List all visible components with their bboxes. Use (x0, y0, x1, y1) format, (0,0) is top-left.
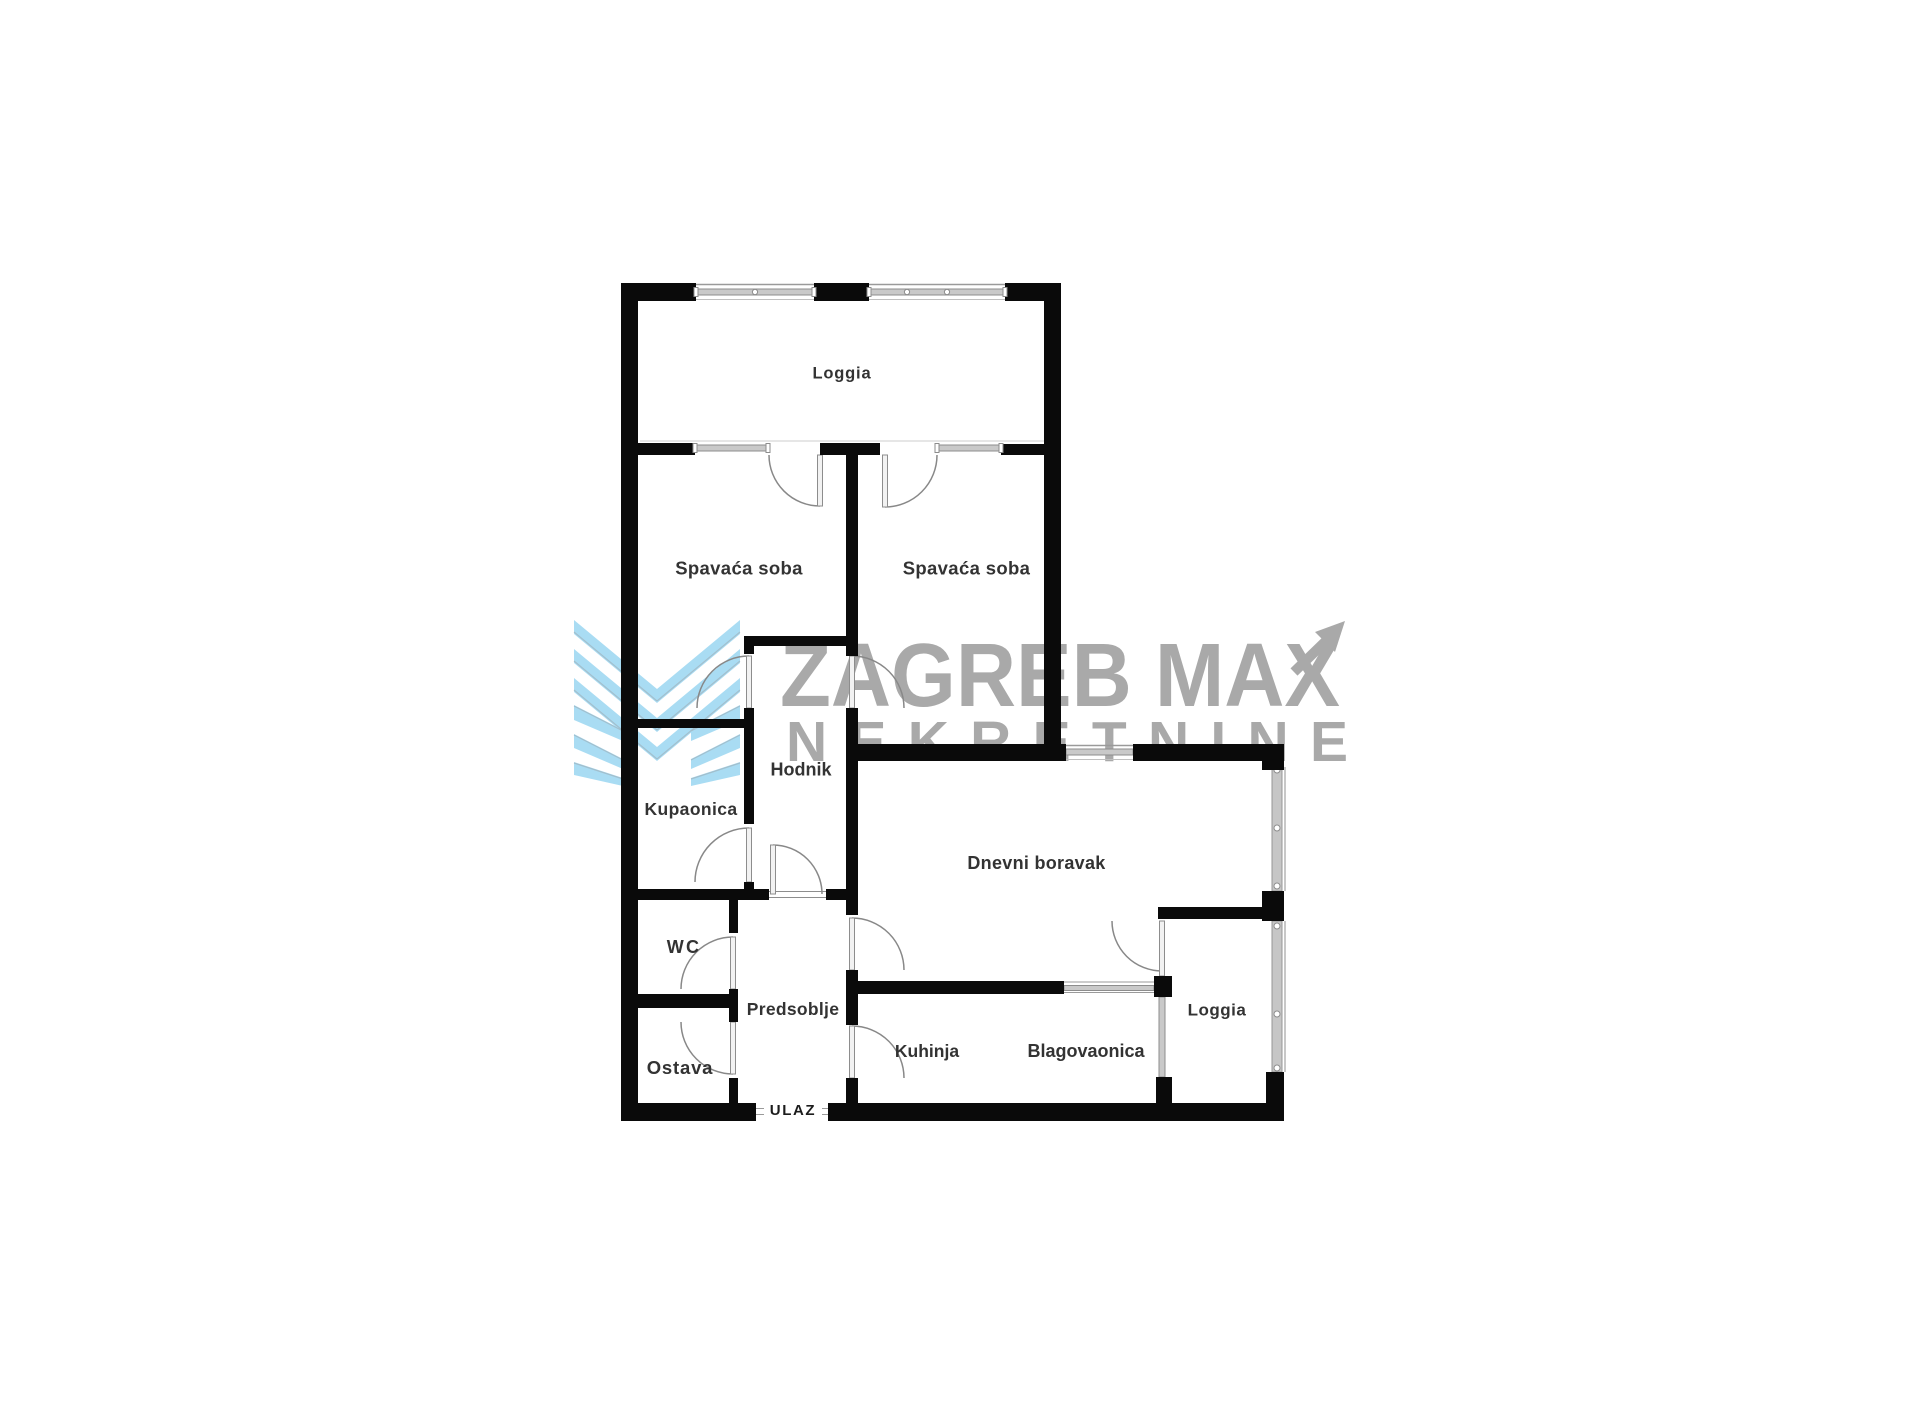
svg-text:WC: WC (667, 937, 701, 957)
svg-text:Spavaća soba: Spavaća soba (903, 558, 1031, 579)
svg-text:Kuhinja: Kuhinja (895, 1041, 959, 1061)
svg-text:Loggia: Loggia (813, 365, 872, 383)
svg-text:Dnevni boravak: Dnevni boravak (967, 853, 1106, 873)
svg-text:Hodnik: Hodnik (771, 760, 833, 780)
svg-text:Loggia: Loggia (1188, 1001, 1247, 1020)
svg-text:Spavaća soba: Spavaća soba (675, 558, 803, 579)
svg-text:ULAZ: ULAZ (770, 1102, 816, 1119)
svg-text:Kupaonica: Kupaonica (644, 799, 737, 819)
svg-text:Predsoblje: Predsoblje (747, 999, 839, 1019)
svg-text:Ostava: Ostava (647, 1057, 714, 1078)
svg-text:Blagovaonica: Blagovaonica (1027, 1041, 1145, 1061)
